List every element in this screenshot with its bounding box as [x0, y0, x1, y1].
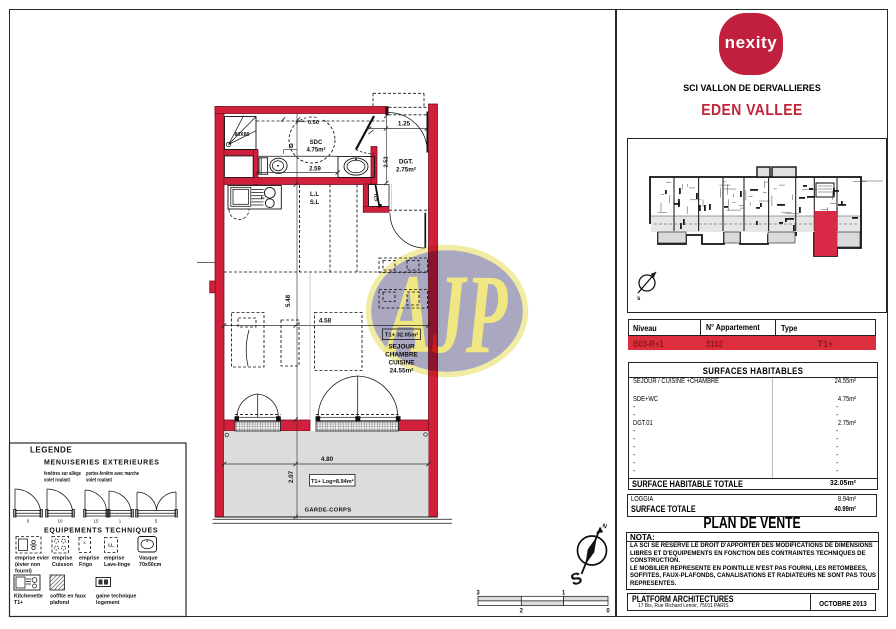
svg-text:N: N — [601, 523, 607, 530]
svg-text:LEGENDE: LEGENDE — [30, 446, 72, 455]
svg-text:GTL: GTL — [374, 192, 379, 201]
svg-text:80X80: 80X80 — [234, 132, 249, 138]
svg-text:2.75m²: 2.75m² — [396, 167, 416, 174]
svg-text:2.52: 2.52 — [384, 157, 390, 168]
svg-text:GARDE-CORPS: GARDE-CORPS — [305, 508, 352, 514]
svg-text:Kitchenette: Kitchenette — [14, 594, 43, 600]
svg-text:2: 2 — [520, 609, 524, 615]
svg-text:emprise: emprise — [79, 556, 99, 562]
svg-text:1: 1 — [562, 591, 566, 597]
svg-text:T1+: T1+ — [14, 600, 23, 606]
svg-text:1.25: 1.25 — [398, 121, 411, 128]
svg-text:70x50cm: 70x50cm — [139, 562, 162, 568]
svg-text:L.L: L.L — [310, 192, 319, 198]
svg-text:s: s — [637, 296, 641, 302]
svg-text:(évier non: (évier non — [15, 562, 40, 568]
svg-text:Cuisson: Cuisson — [52, 562, 73, 568]
svg-text:2.07: 2.07 — [288, 470, 295, 483]
svg-text:Frigo: Frigo — [79, 562, 93, 568]
svg-text:Lave-linge: Lave-linge — [104, 562, 130, 568]
svg-text:soffite en faux: soffite en faux — [50, 594, 86, 600]
svg-text:SDC: SDC — [310, 140, 323, 146]
svg-text:gaine technique: gaine technique — [96, 594, 136, 600]
svg-text:4.75m²: 4.75m² — [306, 147, 325, 154]
svg-text:portes-fenêtre avec marche: portes-fenêtre avec marche — [86, 471, 139, 477]
svg-text:4.80: 4.80 — [321, 456, 334, 463]
svg-text:0: 0 — [606, 609, 610, 615]
svg-text:S.L: S.L — [310, 200, 320, 206]
svg-text:AJP: AJP — [383, 252, 508, 377]
svg-text:F.: F. — [261, 195, 265, 200]
svg-text:Vasque: Vasque — [139, 556, 158, 562]
svg-text:volet roulant: volet roulant — [44, 478, 70, 484]
svg-text:3: 3 — [476, 591, 480, 597]
svg-text:LL: LL — [108, 543, 114, 548]
svg-text:emprise: emprise — [104, 556, 124, 562]
svg-text:5.48: 5.48 — [285, 294, 292, 307]
svg-text:EQUIPEMENTS TECHNIQUES: EQUIPEMENTS TECHNIQUES — [44, 528, 158, 535]
svg-text:volet roulant: volet roulant — [86, 478, 112, 484]
svg-text:10: 10 — [58, 519, 63, 524]
svg-text:2.59: 2.59 — [309, 167, 321, 173]
svg-text:fenêtres sur allège: fenêtres sur allège — [44, 471, 81, 477]
svg-text:logement: logement — [96, 600, 120, 606]
svg-text:emprise evier: emprise evier — [15, 556, 49, 562]
svg-text:plafond: plafond — [50, 600, 69, 606]
svg-text:15: 15 — [94, 519, 99, 524]
svg-text:T1+ Log=8.94m²: T1+ Log=8.94m² — [311, 478, 354, 485]
svg-text:DGT.: DGT. — [399, 159, 414, 166]
svg-text:emprise: emprise — [52, 556, 72, 562]
svg-text:Ø: Ø — [289, 144, 294, 150]
svg-text:fourni): fourni) — [15, 569, 32, 575]
svg-text:4.58: 4.58 — [319, 318, 332, 325]
svg-text:MENUISERIES EXTERIEURES: MENUISERIES EXTERIEURES — [44, 460, 160, 467]
